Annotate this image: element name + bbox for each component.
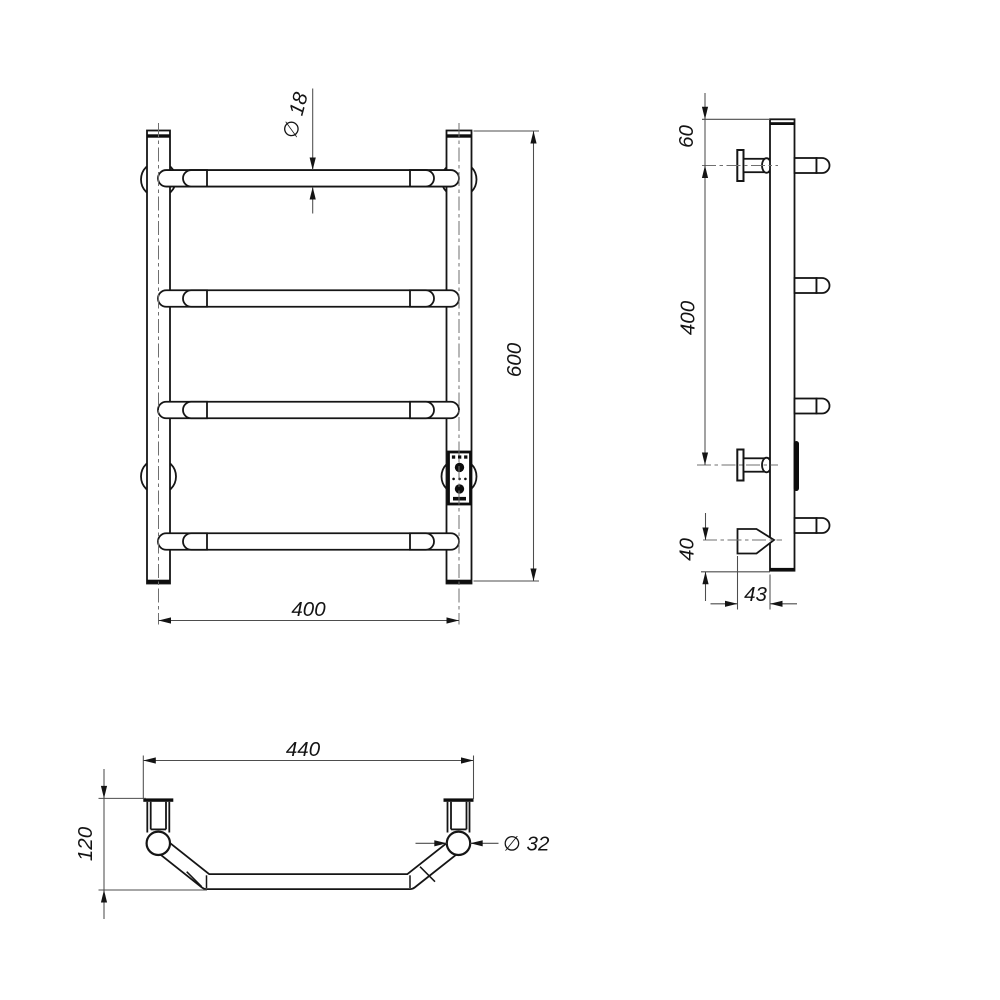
control-panel-side bbox=[794, 441, 799, 491]
bottom-view: 440 120 ∅ 32 bbox=[74, 738, 550, 919]
drawing-canvas: ∅ 18 600 400 bbox=[0, 0, 1000, 1000]
dim-bracket-spacing-label: 400 bbox=[677, 300, 700, 335]
right-post-circle bbox=[447, 832, 470, 855]
right-post-section bbox=[444, 798, 474, 832]
rungs-side bbox=[795, 158, 830, 533]
technical-drawing-towel-rail: ∅ 18 600 400 bbox=[0, 0, 1000, 1000]
bottom-tube bbox=[158, 843, 458, 888]
dim-height-label: 600 bbox=[503, 342, 526, 377]
dim-rung-diameter-label: ∅ 18 bbox=[279, 89, 313, 140]
dim-top-to-bracket-label: 60 bbox=[675, 125, 698, 148]
left-post-section bbox=[143, 798, 173, 832]
rungs-front bbox=[158, 170, 459, 550]
dim-top-to-bracket: 60 bbox=[675, 93, 770, 166]
dim-depth-label: 120 bbox=[74, 826, 97, 861]
side-view: 60 400 40 43 bbox=[675, 93, 830, 610]
cable-entry bbox=[738, 529, 775, 554]
dim-overall-width: 440 bbox=[143, 738, 473, 799]
front-view: ∅ 18 600 400 bbox=[141, 89, 539, 625]
dim-bottom-offset-label: 40 bbox=[676, 538, 699, 561]
wall-bracket-circles-front bbox=[141, 162, 477, 494]
dim-depth: 120 bbox=[74, 769, 207, 919]
dim-wall-depth-label: 43 bbox=[744, 583, 767, 606]
dim-height: 600 bbox=[474, 131, 540, 581]
rail-side bbox=[770, 119, 795, 570]
left-post-circle bbox=[147, 832, 170, 855]
indicator-leds bbox=[452, 455, 455, 458]
rail-caps-front bbox=[147, 134, 472, 583]
dim-overall-width-label: 440 bbox=[286, 738, 321, 761]
dim-rung-diameter: ∅ 18 bbox=[279, 89, 316, 214]
dim-rail-spacing: 400 bbox=[159, 598, 460, 624]
dim-rail-spacing-label: 400 bbox=[291, 598, 326, 621]
dim-bracket-spacing: 400 bbox=[677, 166, 709, 466]
dim-post-diameter-label: ∅ 32 bbox=[503, 833, 550, 856]
